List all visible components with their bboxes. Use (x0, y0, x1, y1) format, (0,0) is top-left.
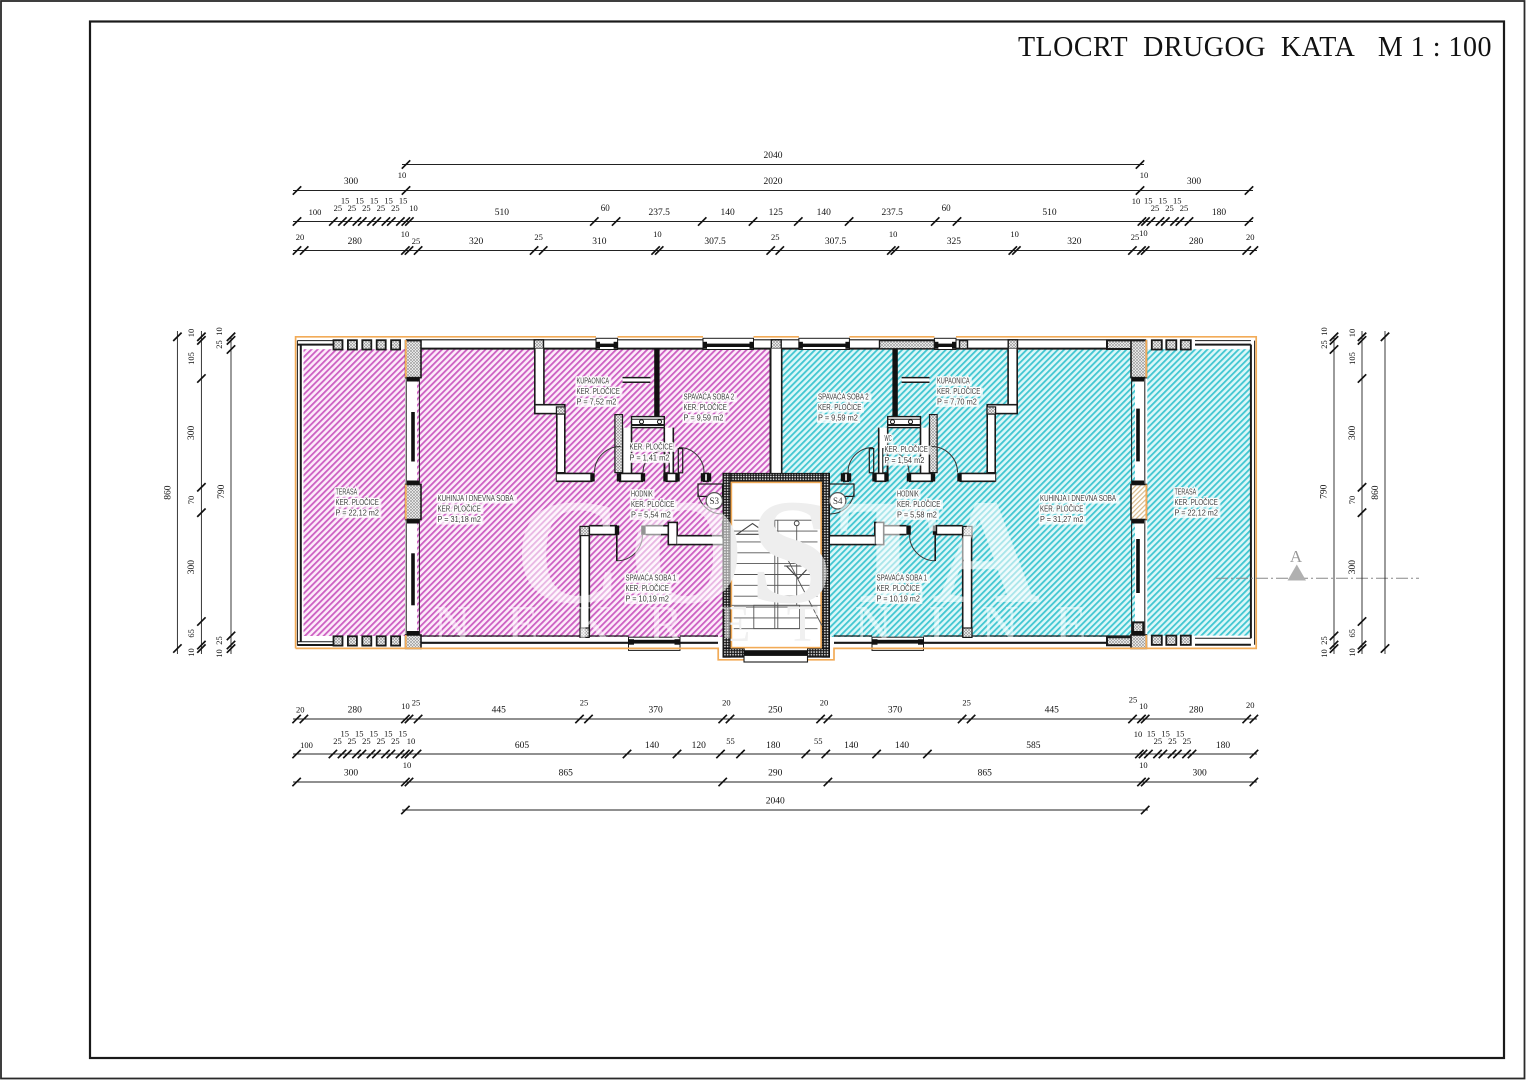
svg-text:SPAVAĆA SOBA 1: SPAVAĆA SOBA 1 (877, 574, 928, 583)
svg-text:10: 10 (1132, 196, 1141, 206)
svg-text:325: 325 (947, 237, 962, 247)
svg-text:10: 10 (1347, 329, 1357, 338)
svg-text:10: 10 (1347, 648, 1357, 657)
svg-text:10: 10 (401, 229, 410, 239)
svg-text:P = 5,58 m2: P = 5,58 m2 (897, 511, 937, 520)
svg-text:140: 140 (645, 741, 660, 751)
svg-text:510: 510 (495, 208, 510, 218)
svg-text:KER. PLOČICE: KER. PLOČICE (937, 387, 980, 396)
svg-text:25: 25 (214, 340, 224, 349)
svg-text:100: 100 (309, 207, 322, 217)
svg-text:105: 105 (1347, 352, 1357, 365)
svg-text:140: 140 (720, 208, 735, 218)
svg-text:25: 25 (1151, 203, 1160, 213)
svg-text:25: 25 (391, 203, 400, 213)
svg-text:P = 10,19 m2: P = 10,19 m2 (877, 595, 920, 604)
svg-text:WC: WC (885, 434, 892, 443)
svg-text:P = 9,59 m2: P = 9,59 m2 (684, 414, 724, 423)
svg-text:250: 250 (768, 706, 783, 716)
svg-text:370: 370 (648, 706, 663, 716)
svg-text:140: 140 (817, 208, 832, 218)
svg-text:P = 1,54 m2: P = 1,54 m2 (885, 456, 925, 465)
svg-text:10: 10 (214, 327, 224, 336)
svg-text:10: 10 (1139, 701, 1148, 711)
svg-text:140: 140 (895, 741, 910, 751)
svg-text:10: 10 (186, 329, 196, 338)
svg-text:865: 865 (559, 769, 574, 779)
svg-text:10: 10 (1139, 760, 1148, 770)
svg-text:P = 1,41 m2: P = 1,41 m2 (630, 454, 670, 463)
svg-text:180: 180 (1212, 208, 1227, 218)
svg-text:100: 100 (300, 740, 313, 750)
svg-text:790: 790 (217, 484, 227, 499)
svg-text:KER. PLOČICE: KER. PLOČICE (1175, 498, 1218, 507)
svg-text:10: 10 (1010, 229, 1019, 239)
svg-text:KER. PLOČICE: KER. PLOČICE (626, 584, 669, 593)
svg-text:P = 22,12 m2: P = 22,12 m2 (336, 509, 379, 518)
svg-text:25: 25 (1131, 232, 1140, 242)
svg-text:20: 20 (1246, 700, 1255, 710)
svg-text:SPAVAĆA SOBA 2: SPAVAĆA SOBA 2 (818, 393, 869, 402)
svg-text:605: 605 (515, 741, 530, 751)
svg-text:KER. PLOČICE: KER. PLOČICE (684, 403, 727, 412)
svg-text:10: 10 (653, 229, 662, 239)
svg-text:10: 10 (403, 760, 412, 770)
svg-text:20: 20 (296, 232, 305, 242)
svg-text:15: 15 (399, 196, 408, 206)
svg-text:25: 25 (362, 736, 371, 746)
svg-text:TERASA: TERASA (336, 488, 358, 497)
svg-text:25: 25 (534, 232, 543, 242)
svg-text:25: 25 (771, 232, 780, 242)
svg-text:25: 25 (1183, 736, 1192, 746)
svg-text:10: 10 (409, 203, 418, 213)
svg-text:307.5: 307.5 (825, 237, 847, 247)
svg-text:2020: 2020 (764, 177, 783, 187)
svg-text:KUPAONICA: KUPAONICA (577, 377, 610, 386)
svg-text:300: 300 (1187, 177, 1202, 187)
svg-text:KER. PLOČICE: KER. PLOČICE (897, 500, 940, 509)
svg-text:20: 20 (296, 705, 305, 715)
svg-text:300: 300 (1348, 560, 1358, 575)
svg-text:P = 10,19 m2: P = 10,19 m2 (626, 595, 669, 604)
svg-text:55: 55 (726, 736, 735, 746)
svg-text:10: 10 (398, 170, 407, 180)
svg-text:280: 280 (348, 706, 363, 716)
svg-text:25: 25 (391, 736, 400, 746)
svg-text:25: 25 (348, 203, 357, 213)
svg-text:180: 180 (1216, 741, 1231, 751)
svg-text:120: 120 (692, 741, 707, 751)
svg-text:HODNIK: HODNIK (897, 490, 919, 499)
svg-text:445: 445 (1045, 706, 1060, 716)
svg-text:125: 125 (769, 208, 784, 218)
svg-text:10: 10 (186, 648, 196, 657)
svg-text:10: 10 (1134, 729, 1143, 739)
svg-text:HODNIK: HODNIK (631, 490, 653, 499)
svg-text:65: 65 (1347, 629, 1357, 638)
svg-text:P = 31,27 m2: P = 31,27 m2 (1040, 515, 1083, 524)
svg-text:55: 55 (814, 736, 823, 746)
svg-text:20: 20 (1246, 232, 1255, 242)
svg-text:60: 60 (601, 203, 611, 213)
svg-text:KER. PLOČICE: KER. PLOČICE (1040, 505, 1083, 514)
svg-text:25: 25 (1129, 695, 1138, 705)
svg-text:KER. PLOČICE: KER. PLOČICE (577, 387, 620, 396)
svg-text:60: 60 (942, 203, 952, 213)
svg-text:370: 370 (888, 706, 903, 716)
svg-text:25: 25 (1168, 736, 1177, 746)
svg-text:KER. PLOČICE: KER. PLOČICE (885, 445, 928, 454)
svg-text:2040: 2040 (766, 797, 785, 807)
svg-text:300: 300 (344, 769, 359, 779)
svg-text:KER. PLOČICE: KER. PLOČICE (438, 505, 481, 514)
svg-text:307.5: 307.5 (704, 237, 726, 247)
svg-text:320: 320 (469, 237, 484, 247)
svg-text:P = 5,54 m2: P = 5,54 m2 (631, 511, 671, 520)
svg-text:SPAVAĆA SOBA 1: SPAVAĆA SOBA 1 (626, 574, 677, 583)
svg-text:P = 22,12 m2: P = 22,12 m2 (1175, 509, 1218, 518)
svg-text:KER. PLOČICE: KER. PLOČICE (336, 498, 379, 507)
svg-text:70: 70 (186, 496, 196, 505)
svg-text:25: 25 (362, 203, 371, 213)
svg-text:KER. PLOČICE: KER. PLOČICE (630, 443, 673, 452)
svg-text:237.5: 237.5 (649, 208, 671, 218)
svg-text:25: 25 (1319, 636, 1329, 645)
svg-text:237.5: 237.5 (882, 208, 904, 218)
svg-text:445: 445 (492, 706, 507, 716)
svg-text:25: 25 (1165, 203, 1174, 213)
svg-text:310: 310 (592, 237, 607, 247)
svg-text:300: 300 (1348, 426, 1358, 441)
svg-text:25: 25 (377, 736, 386, 746)
svg-text:25: 25 (214, 636, 224, 645)
svg-text:25: 25 (412, 236, 421, 246)
svg-text:290: 290 (768, 769, 783, 779)
svg-text:860: 860 (1371, 485, 1381, 500)
svg-text:KUHINJA I DNEVNA SOBA: KUHINJA I DNEVNA SOBA (438, 494, 515, 503)
svg-text:KER. PLOČICE: KER. PLOČICE (877, 584, 920, 593)
svg-text:25: 25 (412, 698, 421, 708)
svg-text:510: 510 (1042, 208, 1057, 218)
svg-text:KUHINJA I DNEVNA SOBA: KUHINJA I DNEVNA SOBA (1040, 494, 1117, 503)
svg-text:10: 10 (401, 701, 410, 711)
svg-text:105: 105 (186, 352, 196, 365)
svg-text:25: 25 (962, 698, 971, 708)
svg-text:25: 25 (1154, 736, 1163, 746)
svg-text:865: 865 (978, 769, 993, 779)
svg-text:P = 7,52 m2: P = 7,52 m2 (577, 398, 617, 407)
svg-text:A: A (1290, 547, 1303, 566)
svg-text:140: 140 (844, 741, 859, 751)
svg-text:585: 585 (1026, 741, 1041, 751)
svg-text:15: 15 (398, 729, 407, 739)
svg-text:10: 10 (1140, 170, 1149, 180)
svg-text:20: 20 (820, 698, 829, 708)
svg-text:70: 70 (1347, 496, 1357, 505)
svg-text:20: 20 (722, 698, 731, 708)
svg-text:280: 280 (348, 237, 363, 247)
svg-text:300: 300 (187, 426, 197, 441)
svg-text:300: 300 (1192, 769, 1207, 779)
svg-text:TLOCRT DRUGOG KATA M 1 : 1: TLOCRT DRUGOG KATA M 1 : 100 (1018, 32, 1492, 63)
svg-text:25: 25 (580, 698, 589, 708)
svg-text:25: 25 (1319, 340, 1329, 349)
svg-text:P = 31,18 m2: P = 31,18 m2 (438, 515, 481, 524)
svg-text:860: 860 (164, 485, 174, 500)
svg-text:10: 10 (1319, 649, 1329, 658)
svg-text:P = 7,70 m2: P = 7,70 m2 (937, 398, 977, 407)
svg-text:25: 25 (377, 203, 386, 213)
svg-text:320: 320 (1067, 237, 1082, 247)
svg-text:300: 300 (187, 560, 197, 575)
svg-text:790: 790 (1320, 484, 1330, 499)
svg-text:25: 25 (1180, 203, 1189, 213)
svg-text:65: 65 (186, 629, 196, 638)
svg-text:280: 280 (1189, 706, 1204, 716)
svg-text:TERASA: TERASA (1175, 488, 1197, 497)
svg-text:10: 10 (1139, 228, 1148, 238)
svg-text:10: 10 (889, 229, 898, 239)
svg-text:KER. PLOČICE: KER. PLOČICE (818, 403, 861, 412)
svg-text:25: 25 (348, 736, 357, 746)
svg-text:10: 10 (407, 736, 416, 746)
svg-text:180: 180 (766, 741, 781, 751)
svg-text:10: 10 (1319, 327, 1329, 336)
svg-text:10: 10 (214, 649, 224, 658)
svg-text:280: 280 (1189, 237, 1204, 247)
svg-text:P = 9,59 m2: P = 9,59 m2 (818, 414, 858, 423)
svg-text:KER. PLOČICE: KER. PLOČICE (631, 500, 674, 509)
svg-text:2040: 2040 (764, 151, 783, 161)
svg-text:300: 300 (344, 177, 359, 187)
svg-text:SPAVAĆA SOBA 2: SPAVAĆA SOBA 2 (684, 393, 735, 402)
svg-text:KUPAONICA: KUPAONICA (937, 377, 970, 386)
